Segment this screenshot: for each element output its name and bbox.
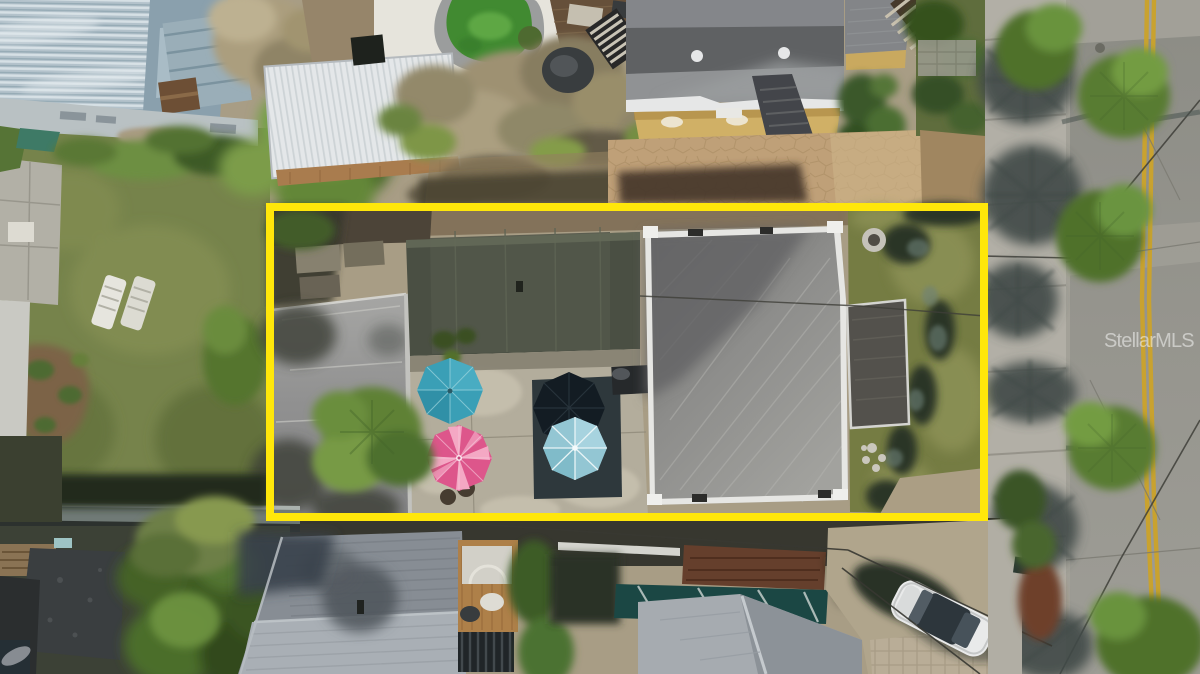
svg-text:StellarMLS: StellarMLS — [1104, 330, 1194, 352]
